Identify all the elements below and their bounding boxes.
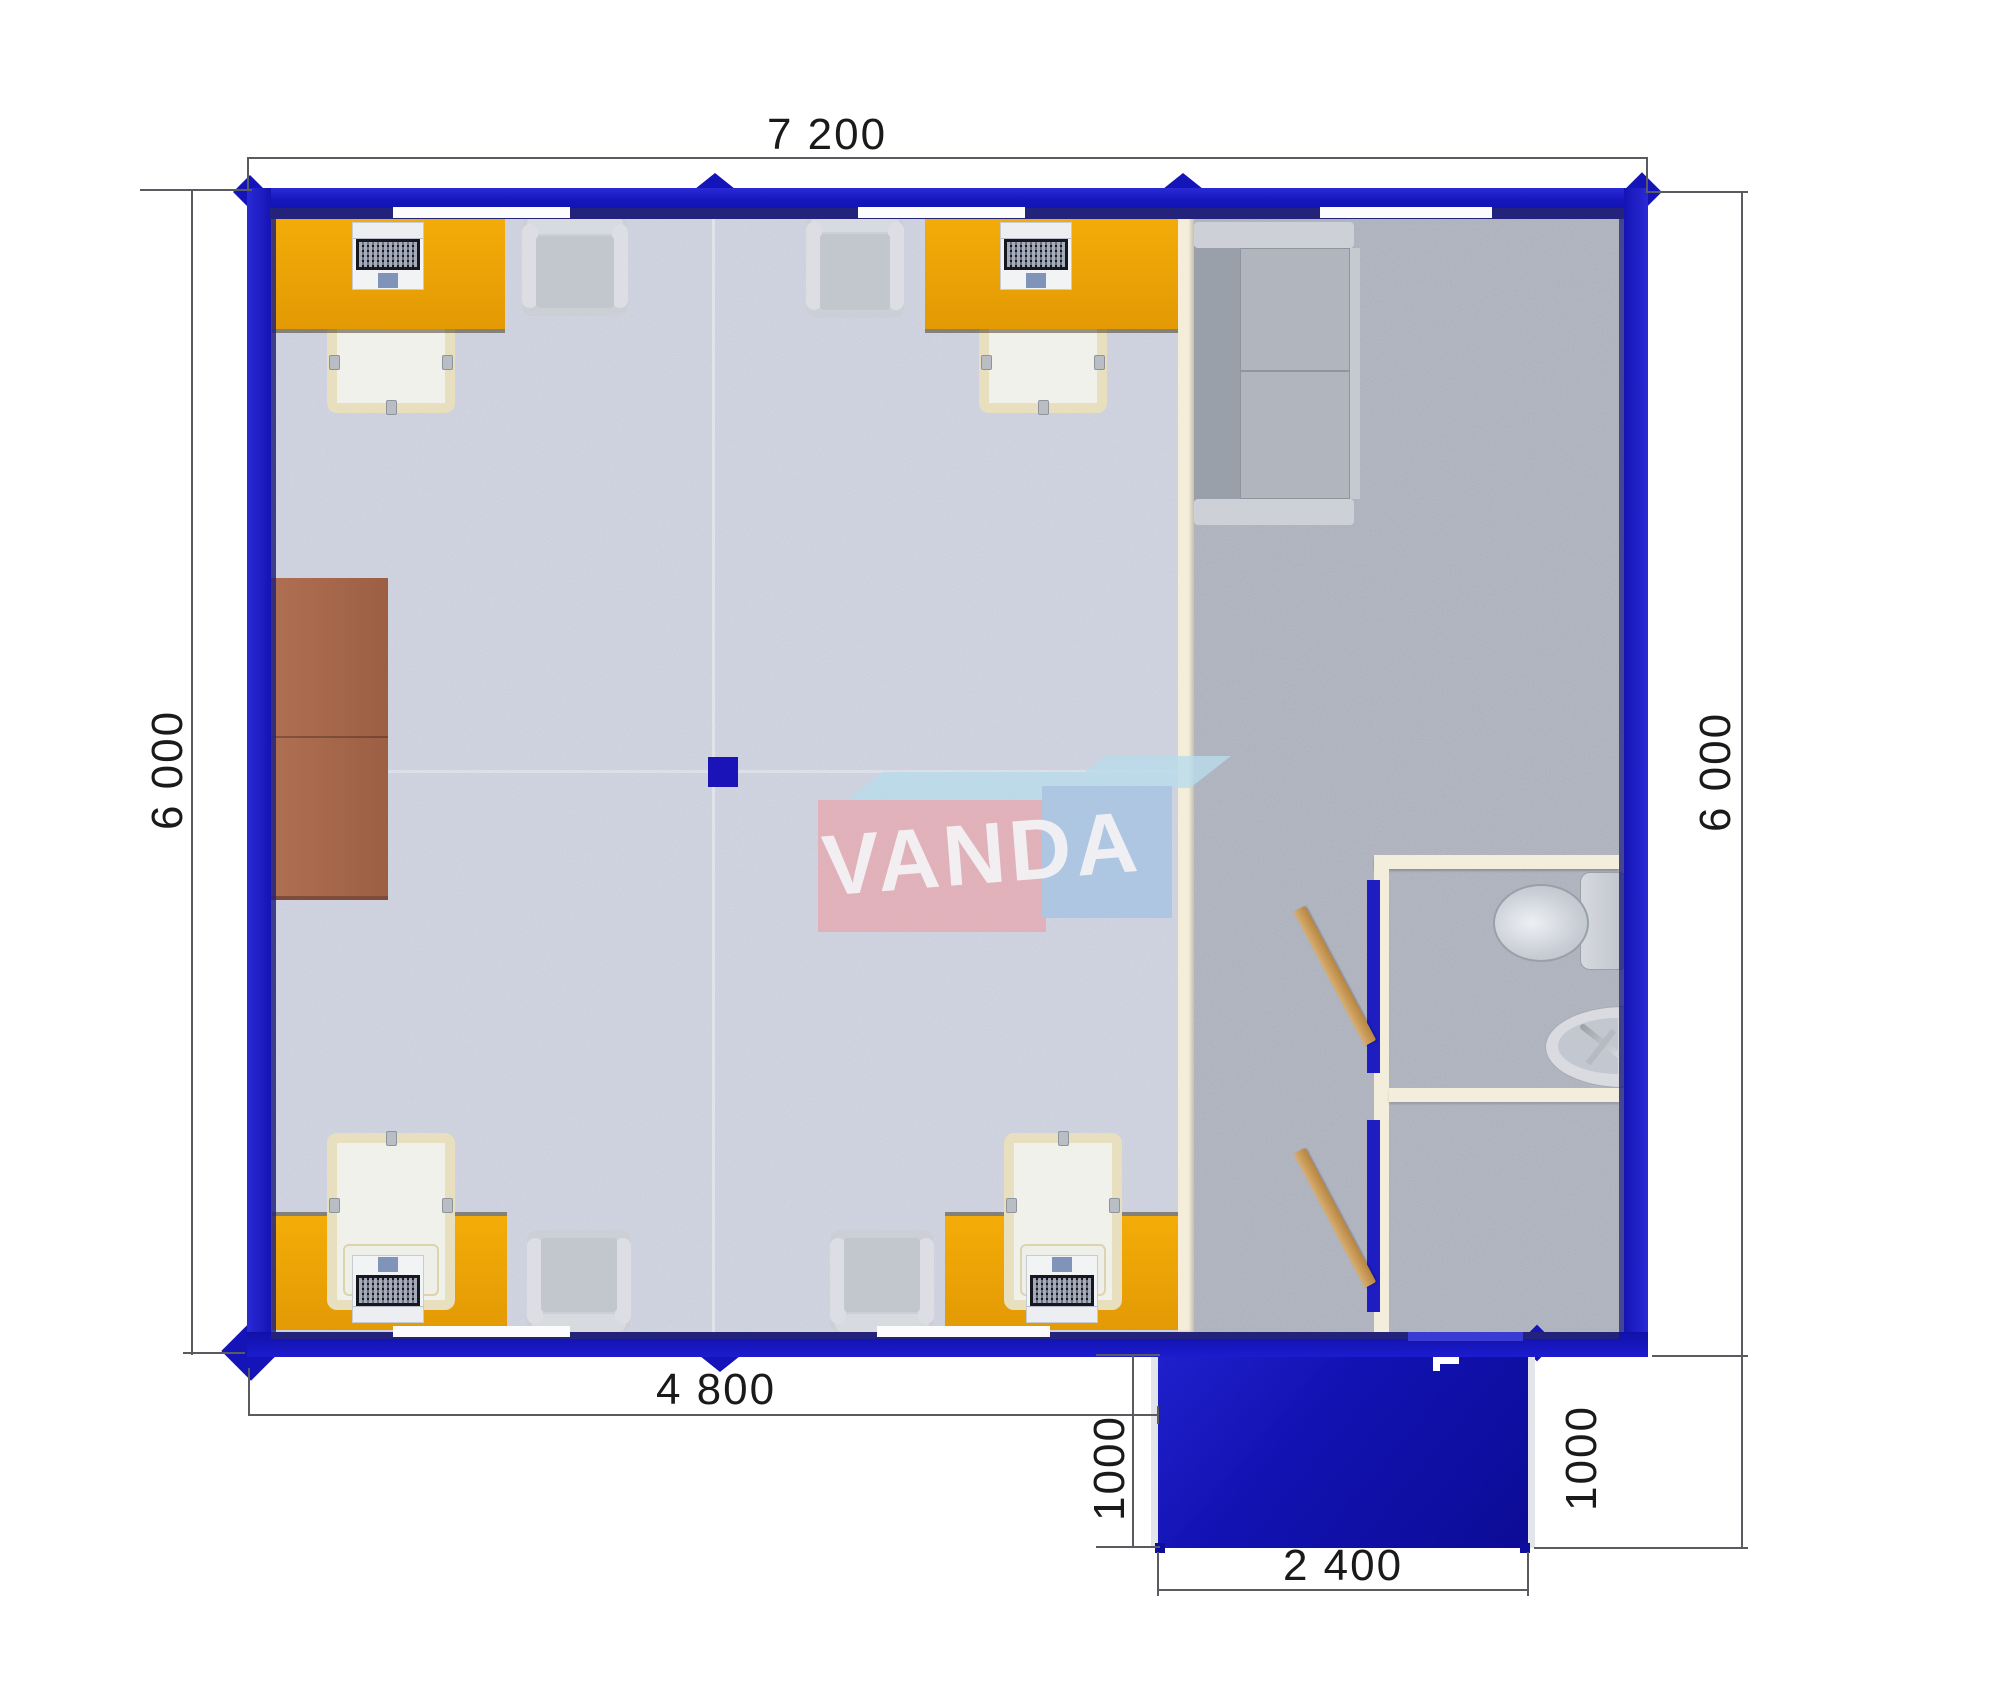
window-south-1 <box>393 1326 570 1337</box>
chair-caster <box>1006 1198 1017 1213</box>
dimension-tick <box>1096 1546 1160 1548</box>
sofa <box>1194 222 1360 525</box>
dimension-label-left-height: 6 000 <box>143 710 193 830</box>
armchair-seat <box>844 1238 920 1312</box>
chair-caster <box>1109 1198 1120 1213</box>
laptop-touchpad <box>1052 1257 1072 1272</box>
dimension-tick <box>1096 1354 1160 1356</box>
bathroom-wall-middle <box>1389 1088 1619 1102</box>
armchair-arm <box>612 224 628 308</box>
extension-line <box>247 157 249 191</box>
sofa-cushion <box>1240 248 1350 371</box>
toilet-bowl <box>1493 884 1589 962</box>
armchair-arm <box>888 222 904 310</box>
chair-caster <box>981 355 992 370</box>
wall-east <box>1624 188 1648 1357</box>
wall-west-inner-edge <box>271 214 276 1332</box>
sofa-back <box>1194 246 1240 501</box>
chair-caster <box>329 355 340 370</box>
module-joint-marker <box>695 173 735 189</box>
module-joint-marker <box>1163 173 1203 189</box>
laptop-lid <box>353 223 423 239</box>
laptop-touchpad <box>1026 273 1046 288</box>
dimension-tick <box>1652 1355 1748 1357</box>
entrance-door-opening <box>1408 1332 1523 1341</box>
chair-caster <box>386 400 397 415</box>
dimension-label-overall-width: 7 200 <box>767 110 887 160</box>
laptop-palmrest <box>353 270 423 289</box>
laptop-lid <box>1001 223 1071 239</box>
wall-south-inner-edge <box>1523 1332 1619 1339</box>
window-north-3 <box>1320 207 1492 218</box>
laptop-keyboard <box>356 1275 420 1306</box>
dimension-tick <box>1534 1547 1748 1549</box>
wall-west <box>247 188 271 1357</box>
laptop-keyboard <box>1004 239 1068 270</box>
armchair-seat <box>541 1238 617 1312</box>
cabinet-seam <box>270 736 388 738</box>
dimension-label-office-width: 4 800 <box>656 1365 776 1415</box>
laptop-palmrest <box>1027 1256 1097 1275</box>
entrance-porch-canopy <box>1158 1357 1528 1548</box>
laptop-palmrest <box>353 1256 423 1275</box>
chair-caster <box>1094 355 1105 370</box>
laptop-top-left <box>352 222 424 290</box>
sofa-front-edge <box>1350 248 1360 499</box>
dimension-tick <box>140 189 252 191</box>
laptop-bottom-left <box>352 1255 424 1323</box>
armchair-bottom-right <box>830 1230 934 1332</box>
dimension-label-porch-depth-left: 1000 <box>1085 1415 1135 1521</box>
extension-line <box>1646 157 1648 193</box>
laptop-lid <box>353 1306 423 1322</box>
armchair-top-right <box>806 214 904 318</box>
sofa-cushion <box>1240 371 1350 499</box>
chair-caster <box>1058 1131 1069 1146</box>
extension-line <box>248 1368 250 1416</box>
bathroom-wall-north <box>1374 855 1619 869</box>
dimension-line-right <box>1741 191 1743 1549</box>
chair-caster <box>329 1198 340 1213</box>
laptop-palmrest <box>1001 270 1071 289</box>
vanda-watermark: VANDA <box>812 752 1172 942</box>
bathroom-door-frame-upper <box>1367 880 1380 1073</box>
support-column <box>708 757 738 787</box>
storage-cabinet <box>270 578 388 900</box>
chair-caster <box>442 1198 453 1213</box>
floor-plan-canvas: VANDA 7 200 6 000 6 000 4 800 <box>0 0 2000 1682</box>
laptop-lid <box>1027 1306 1097 1322</box>
laptop-keyboard <box>1030 1275 1094 1306</box>
dimension-tick <box>1157 1406 1159 1424</box>
armchair-arm <box>918 1238 934 1324</box>
dimension-label-right-height: 6 000 <box>1691 712 1741 832</box>
armchair-bottom-left <box>527 1230 631 1332</box>
extension-line <box>1157 1552 1159 1596</box>
dimension-tick <box>1646 191 1748 193</box>
window-south-2 <box>877 1326 1050 1337</box>
chair-caster <box>442 355 453 370</box>
laptop-bottom-right <box>1026 1255 1098 1323</box>
dimension-label-porch-depth-right: 1000 <box>1557 1405 1607 1511</box>
laptop-top-right <box>1000 222 1072 290</box>
armchair-seat <box>820 234 890 310</box>
porch-edge <box>1151 1357 1158 1548</box>
laptop-keyboard <box>356 239 420 270</box>
chair-caster <box>1038 400 1049 415</box>
dimension-line-top <box>248 157 1648 159</box>
sofa-armrest <box>1194 499 1354 525</box>
laptop-touchpad <box>378 273 398 288</box>
chair-caster <box>386 1131 397 1146</box>
armchair-seat <box>536 236 614 308</box>
window-north-1 <box>393 207 570 218</box>
sofa-armrest <box>1194 222 1354 248</box>
armchair-top-left <box>522 216 628 316</box>
armchair-arm <box>615 1238 631 1324</box>
porch-edge <box>1528 1357 1535 1548</box>
window-north-2 <box>858 207 1025 218</box>
wall-east-inner-edge <box>1619 214 1624 1332</box>
extension-line <box>1527 1552 1529 1596</box>
dimension-label-porch-width: 2 400 <box>1283 1541 1403 1591</box>
entrance-door-handle <box>1433 1357 1440 1371</box>
laptop-touchpad <box>378 1257 398 1272</box>
dimension-tick <box>183 1352 245 1354</box>
